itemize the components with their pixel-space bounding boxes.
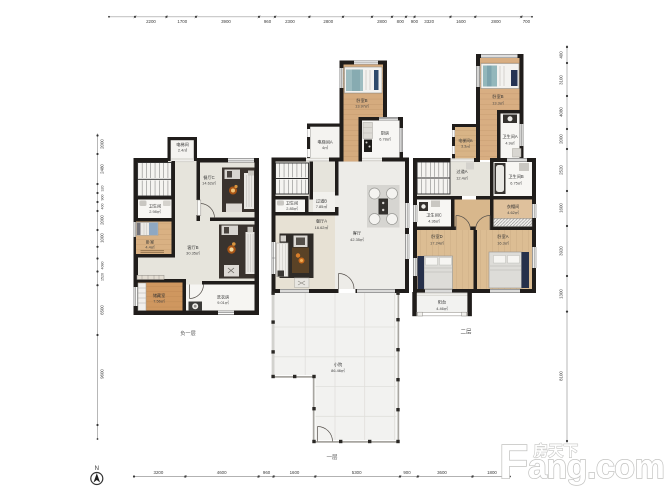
svg-text:13.3㎡: 13.3㎡ xyxy=(492,101,504,106)
svg-text:2480: 2480 xyxy=(100,164,105,174)
svg-text:二层: 二层 xyxy=(460,329,472,336)
svg-text:5300: 5300 xyxy=(352,470,362,475)
svg-text:4.62㎡: 4.62㎡ xyxy=(507,210,519,215)
svg-text:F: F xyxy=(499,436,528,489)
svg-text:86.46㎡: 86.46㎡ xyxy=(331,368,345,373)
svg-text:1000: 1000 xyxy=(100,233,105,243)
svg-text:3600: 3600 xyxy=(437,470,447,475)
svg-text:4㎡: 4㎡ xyxy=(322,145,328,150)
svg-text:400: 400 xyxy=(101,204,105,210)
svg-text:4600: 4600 xyxy=(217,470,227,475)
svg-text:卫生间A: 卫生间A xyxy=(502,133,518,140)
svg-text:4080: 4080 xyxy=(101,262,105,270)
svg-text:房天下: 房天下 xyxy=(534,442,579,460)
svg-text:13.97㎡: 13.97㎡ xyxy=(355,104,369,109)
svg-text:2800: 2800 xyxy=(377,19,387,24)
svg-text:17.24㎡: 17.24㎡ xyxy=(430,241,444,246)
svg-text:3100: 3100 xyxy=(559,75,564,85)
svg-text:700: 700 xyxy=(523,19,531,24)
svg-text:3.3㎡: 3.3㎡ xyxy=(461,144,470,149)
svg-text:7.56㎡: 7.56㎡ xyxy=(153,299,165,304)
svg-text:3900: 3900 xyxy=(221,19,231,24)
svg-text:30.35㎡: 30.35㎡ xyxy=(186,251,200,256)
svg-text:900: 900 xyxy=(403,470,411,475)
svg-text:2.85㎡: 2.85㎡ xyxy=(286,206,298,211)
svg-text:卧室B: 卧室B xyxy=(492,93,503,100)
svg-text:4080: 4080 xyxy=(559,107,564,117)
svg-text:3920: 3920 xyxy=(559,246,564,256)
svg-text:2000: 2000 xyxy=(559,134,564,144)
svg-text:14.62㎡: 14.62㎡ xyxy=(202,181,216,186)
svg-text:3320: 3320 xyxy=(424,19,434,24)
svg-text:卫生间C: 卫生间C xyxy=(426,212,442,219)
svg-text:卧室A: 卧室A xyxy=(497,233,508,240)
svg-text:9.01㎡: 9.01㎡ xyxy=(217,300,229,305)
svg-text:6500: 6500 xyxy=(100,305,105,315)
svg-text:1800: 1800 xyxy=(487,470,497,475)
svg-text:1600: 1600 xyxy=(456,19,466,24)
svg-text:4.4㎡: 4.4㎡ xyxy=(145,245,154,250)
svg-text:卧室D: 卧室D xyxy=(431,233,442,240)
svg-text:960: 960 xyxy=(263,470,271,475)
svg-text:小院: 小院 xyxy=(334,361,343,368)
svg-text:2520: 2520 xyxy=(559,165,564,175)
svg-text:阳台: 阳台 xyxy=(438,299,446,306)
svg-text:1520: 1520 xyxy=(101,273,105,281)
svg-text:衣帽间: 衣帽间 xyxy=(507,203,520,210)
svg-text:2000: 2000 xyxy=(100,215,105,225)
svg-text:卫生间B: 卫生间B xyxy=(508,173,524,180)
svg-text:42.35㎡: 42.35㎡ xyxy=(350,237,364,242)
svg-text:4.36㎡: 4.36㎡ xyxy=(428,219,440,224)
svg-text:电梯间B: 电梯间B xyxy=(458,138,473,143)
svg-text:2300: 2300 xyxy=(285,19,295,24)
svg-text:900: 900 xyxy=(411,19,419,24)
svg-text:960: 960 xyxy=(264,19,272,24)
svg-text:一层: 一层 xyxy=(326,454,338,461)
svg-text:客厅: 客厅 xyxy=(353,230,361,237)
svg-text:9600: 9600 xyxy=(100,369,105,379)
svg-text:餐厅A: 餐厅A xyxy=(316,218,327,225)
svg-text:2.98㎡: 2.98㎡ xyxy=(149,209,161,214)
svg-text:16.62㎡: 16.62㎡ xyxy=(315,225,329,230)
svg-text:800: 800 xyxy=(397,19,405,24)
svg-text:2.4㎡: 2.4㎡ xyxy=(178,148,187,153)
svg-text:900: 900 xyxy=(101,195,105,201)
svg-text:400: 400 xyxy=(559,51,564,59)
svg-text:4.9㎡: 4.9㎡ xyxy=(505,141,514,146)
svg-text:1300: 1300 xyxy=(559,289,564,299)
svg-text:6.78㎡: 6.78㎡ xyxy=(379,137,391,142)
svg-text:1700: 1700 xyxy=(177,19,187,24)
svg-text:N: N xyxy=(95,466,99,472)
svg-text:1600: 1600 xyxy=(559,203,564,213)
svg-text:16.3㎡: 16.3㎡ xyxy=(497,241,509,246)
svg-text:8100: 8100 xyxy=(559,371,564,381)
svg-text:2000: 2000 xyxy=(100,139,105,149)
svg-text:12.4㎡: 12.4㎡ xyxy=(456,176,468,181)
svg-text:3200: 3200 xyxy=(154,470,164,475)
svg-text:厨房: 厨房 xyxy=(381,130,389,137)
svg-text:2200: 2200 xyxy=(146,19,156,24)
svg-text:过道A: 过道A xyxy=(456,168,467,175)
svg-text:2800: 2800 xyxy=(491,19,501,24)
svg-text:320: 320 xyxy=(101,186,105,192)
svg-text:2800: 2800 xyxy=(323,19,333,24)
svg-text:4.46㎡: 4.46㎡ xyxy=(436,306,448,311)
svg-text:1600: 1600 xyxy=(290,470,300,475)
svg-text:负一层: 负一层 xyxy=(180,329,196,337)
svg-text:6.75㎡: 6.75㎡ xyxy=(510,181,522,186)
svg-text:7.85㎡: 7.85㎡ xyxy=(316,204,328,209)
